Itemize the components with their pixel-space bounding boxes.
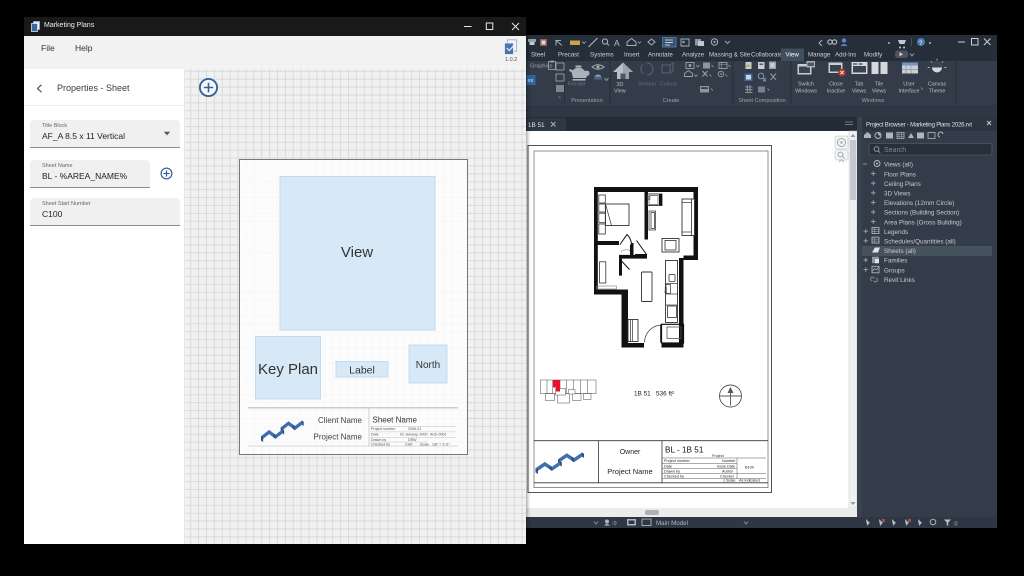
svg-text:Modify: Modify: [864, 52, 883, 59]
svg-text:Area Plans (Gross Building): Area Plans (Gross Building): [884, 219, 962, 226]
svg-text:Windows: Windows: [862, 98, 885, 104]
svg-text:Owner: Owner: [620, 449, 641, 456]
svg-text:Precast: Precast: [558, 52, 579, 59]
svg-text:Annotate: Annotate: [648, 52, 673, 59]
svg-text:Massing & Site: Massing & Site: [709, 52, 751, 59]
svg-text:Interface: Interface: [899, 89, 920, 95]
svg-text:Author: Author: [722, 470, 734, 474]
svg-text:Number: Number: [722, 459, 736, 463]
svg-text:Sheets (all): Sheets (all): [884, 248, 916, 255]
svg-text:3D: 3D: [617, 82, 624, 88]
svg-text:Analyze: Analyze: [682, 52, 705, 59]
svg-text:Steel: Steel: [531, 52, 545, 59]
svg-text:Sections (Building Section): Sections (Building Section): [884, 210, 959, 217]
svg-text:1/8" = 1'-0": 1/8" = 1'-0": [432, 442, 450, 446]
svg-text:View: View: [786, 52, 800, 59]
svg-text:3D Views: 3D Views: [884, 191, 910, 198]
svg-text:Ceiling Plans: Ceiling Plans: [884, 181, 921, 188]
svg-text:Project number: Project number: [371, 427, 396, 431]
svg-text:CHK: CHK: [405, 442, 413, 446]
svg-text:Insert: Insert: [624, 52, 640, 59]
svg-text:- 1B 51: - 1B 51: [524, 122, 545, 129]
svg-text:Project number: Project number: [664, 459, 690, 463]
svg-text:Key Plan: Key Plan: [258, 361, 318, 378]
svg-text:Presentation: Presentation: [571, 98, 602, 104]
svg-text:Inactive: Inactive: [827, 89, 846, 95]
svg-text:Create: Create: [663, 98, 680, 104]
svg-text:Windows: Windows: [795, 89, 817, 95]
svg-text:Elevations (12mm Circle): Elevations (12mm Circle): [884, 200, 954, 207]
svg-text:Floor Plans: Floor Plans: [884, 171, 916, 178]
svg-text:2006-01: 2006-01: [408, 427, 421, 431]
svg-text:Project: Project: [712, 454, 725, 458]
svg-text:536 ft²: 536 ft²: [656, 391, 674, 398]
svg-text:Tab: Tab: [855, 82, 864, 88]
svg-text:Main Model: Main Model: [656, 520, 688, 527]
svg-text:Collaborate: Collaborate: [751, 52, 783, 59]
svg-text:Drawn by: Drawn by: [664, 470, 680, 474]
svg-text:Manage: Manage: [808, 52, 831, 59]
svg-text:Date: Date: [371, 433, 379, 437]
svg-text:×: ×: [558, 95, 561, 101]
svg-text:Callout: Callout: [660, 82, 677, 88]
svg-text:Tile: Tile: [875, 82, 884, 88]
svg-text:Drawn by: Drawn by: [371, 438, 386, 442]
svg-text::0: :0: [612, 521, 617, 527]
svg-text:1B 51: 1B 51: [634, 391, 651, 398]
svg-text:Theme: Theme: [929, 89, 946, 95]
svg-text:Search: Search: [884, 147, 906, 154]
svg-text:Views: Views: [872, 89, 887, 95]
svg-text:Issue Date: Issue Date: [717, 464, 735, 468]
svg-text:DW: DW: [664, 286, 668, 293]
svg-text:Checked by: Checked by: [664, 475, 684, 479]
svg-text:Render: Render: [568, 82, 586, 88]
svg-text:Project Name: Project Name: [314, 433, 363, 442]
svg-text:Graphics: Graphics: [530, 64, 553, 70]
svg-text:Revit Links: Revit Links: [884, 277, 915, 284]
svg-text:Scale: Scale: [726, 479, 736, 483]
svg-text:Client Name: Client Name: [318, 416, 363, 425]
svg-text:Project Name: Project Name: [607, 467, 652, 476]
svg-text:Project Browser - Marketing Pl: Project Browser - Marketing Plans 2026.r…: [866, 123, 972, 129]
svg-text:Legends: Legends: [884, 229, 908, 236]
svg-text:Systems: Systems: [590, 52, 614, 59]
svg-text:Sheet Name: Sheet Name: [373, 416, 418, 425]
svg-text:View: View: [341, 244, 373, 261]
svg-text:Canvas: Canvas: [928, 82, 947, 88]
svg-text:Add-Ins: Add-Ins: [835, 52, 856, 59]
svg-text:01 January, 3000: 01 January, 3000: [400, 433, 428, 437]
svg-text:Views: Views: [852, 89, 867, 95]
svg-text:Sheet Composition: Sheet Composition: [738, 98, 785, 104]
svg-text:Close: Close: [829, 82, 843, 88]
svg-text::0: :0: [953, 522, 958, 528]
svg-text:B100: B100: [745, 466, 754, 470]
svg-text:View: View: [614, 89, 626, 95]
svg-text:Schedules/Quantities (all): Schedules/Quantities (all): [884, 239, 956, 246]
svg-text:Views (all): Views (all): [884, 162, 913, 169]
svg-text:A: A: [614, 38, 620, 48]
svg-text:Arch-0001: Arch-0001: [430, 433, 447, 437]
svg-text:Families: Families: [884, 258, 907, 265]
svg-text:Switch: Switch: [798, 82, 814, 88]
svg-text:Section: Section: [638, 82, 656, 88]
svg-text:es: es: [528, 78, 534, 84]
svg-text:User: User: [903, 82, 915, 88]
svg-text:Scale: Scale: [420, 442, 429, 446]
svg-text:BL - 1B 51: BL - 1B 51: [665, 446, 704, 455]
svg-text:Label: Label: [349, 365, 375, 377]
svg-text:Groups: Groups: [884, 267, 905, 274]
svg-text:Date: Date: [664, 464, 672, 468]
svg-text:DRW: DRW: [408, 438, 417, 442]
svg-text:North: North: [416, 360, 440, 371]
svg-text:Checked by: Checked by: [371, 442, 390, 446]
svg-text:As indicated: As indicated: [739, 479, 760, 483]
